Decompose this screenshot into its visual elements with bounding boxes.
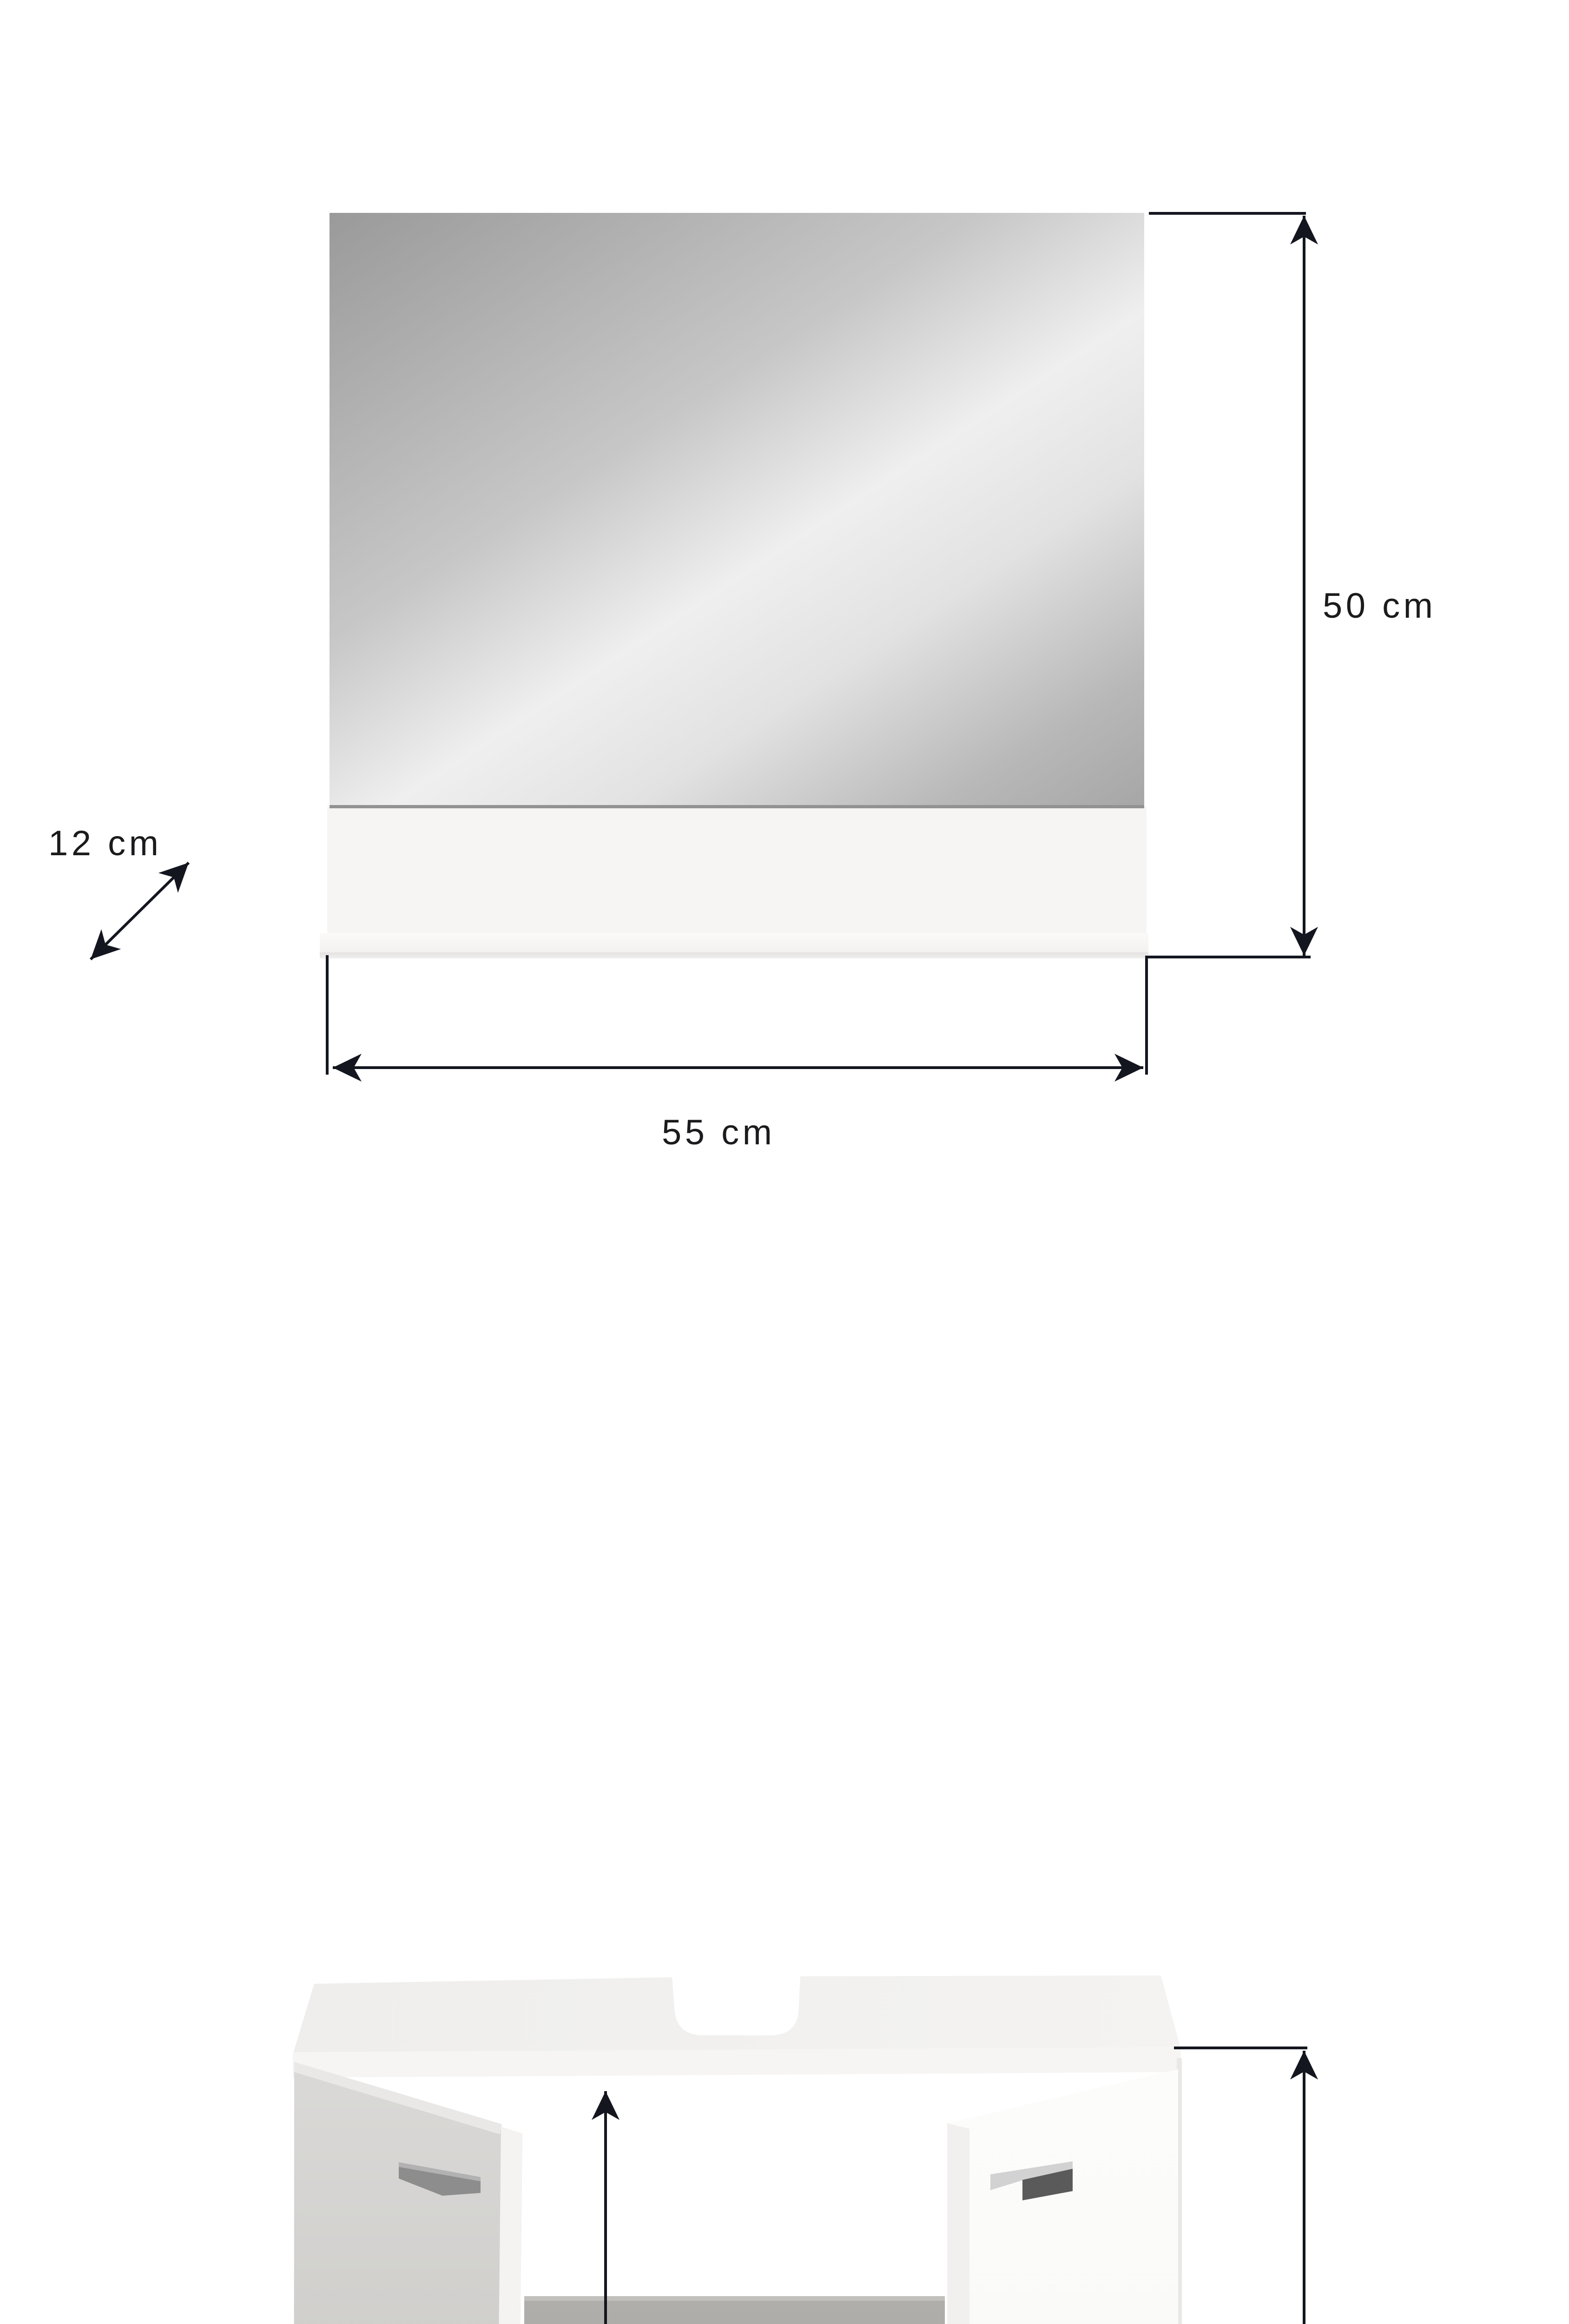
svg-text:12 cm: 12 cm bbox=[48, 824, 162, 863]
svg-text:50 cm: 50 cm bbox=[1323, 586, 1436, 626]
svg-text:55 cm: 55 cm bbox=[662, 1113, 775, 1152]
